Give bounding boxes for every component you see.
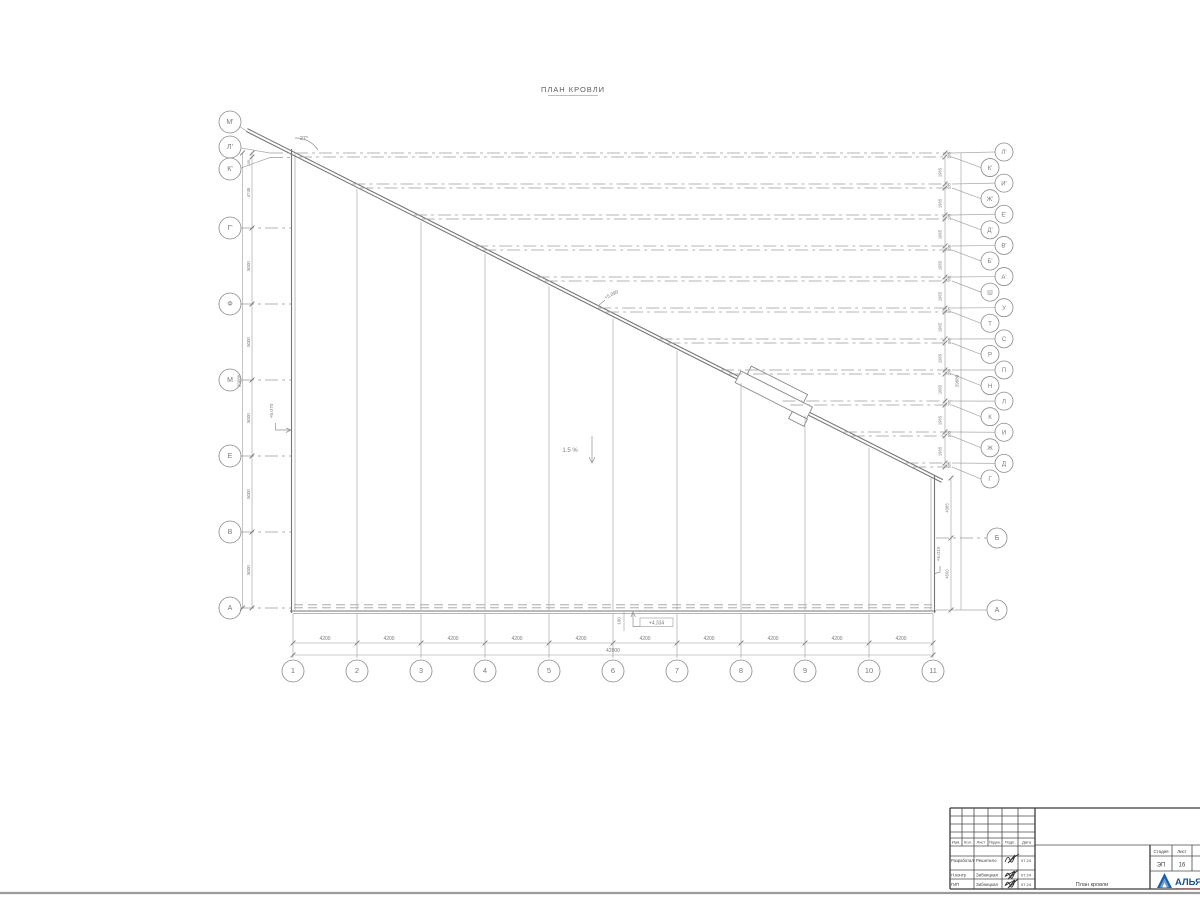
dim-right-bottom: 4500 <box>945 569 950 579</box>
dim-right-segment: 1965 <box>938 229 943 239</box>
dim-right-pair: 195 <box>948 307 952 313</box>
dim-bottom-segment: 4200 <box>639 636 650 642</box>
signature <box>1005 870 1018 879</box>
title-block: Разработал Решетило 07.24 Н.контр Зибниц… <box>950 808 1200 891</box>
elevation-right-leader <box>935 566 940 574</box>
titleblock-date-1: 07.24 <box>1021 858 1032 863</box>
building-outline <box>246 129 943 614</box>
axis-bubble-bottom-6-label: 6 <box>611 666 615 675</box>
titleblock-header-2: Лист <box>977 840 986 845</box>
elevation-bottom-label: +4.334 <box>649 621 665 627</box>
axis-bubble-right-Ж-19-label: Ж <box>987 446 993 452</box>
elevation-left-label: +5.070 <box>269 403 275 418</box>
signature <box>1005 879 1018 888</box>
angle-arc <box>295 138 318 150</box>
axis-bubble-right-Л'-0-label: Л' <box>1001 150 1006 156</box>
dim-right-segment: 1965 <box>938 446 943 456</box>
dim-bottom-segment: 4200 <box>319 636 330 642</box>
dim-right-pair: 195 <box>948 462 952 468</box>
offset-dim-label: 100 <box>617 617 622 625</box>
dim-bottom-segment: 4200 <box>831 636 842 642</box>
dim-right-segment: 1965 <box>938 291 943 301</box>
dim-bottom-segment: 4200 <box>767 636 778 642</box>
axis-bubble-right-И'-2-label: И' <box>1001 181 1006 187</box>
axis-bubble-bottom-5-label: 5 <box>547 666 551 675</box>
axis-bubble-right-Б-label: Б <box>995 535 1000 542</box>
axis-bubble-bottom-2-label: 2 <box>355 666 359 675</box>
axis-bubble-right-Ш-9-label: Ш <box>987 290 993 296</box>
titleblock-header-4: Подп. <box>1005 840 1016 845</box>
axis-bubble-left-Е-label: Е <box>228 453 233 460</box>
signature <box>1005 854 1019 863</box>
axis-bubble-right-Н-15-label: Н <box>988 384 992 390</box>
axis-bubble-right-Т-11-label: Т <box>988 321 992 327</box>
titleblock-name-2: Зибницкая <box>976 873 998 878</box>
company-logo: АЛЬЯ строительная компания <box>1157 873 1200 891</box>
dim-right-segment: 1965 <box>938 384 943 394</box>
roof-hatch <box>732 363 818 426</box>
stage-label: Стадия <box>1154 849 1170 854</box>
axis-bubble-bottom-8-label: 8 <box>739 666 743 675</box>
axis-bubble-left-Ф-label: Ф <box>227 301 232 308</box>
dim-left-total: 29680 <box>237 374 242 387</box>
dim-bottom-total: 42000 <box>606 648 620 654</box>
titleblock-role-2: Н.контр <box>951 873 967 878</box>
dim-bottom-segment: 4200 <box>383 636 394 642</box>
axis-bubble-bottom-1-label: 1 <box>291 666 295 675</box>
axis-bubble-right-У-10-label: У <box>1002 306 1006 312</box>
axis-bubble-right-Б'-7-label: Б' <box>987 259 992 265</box>
axis-bubble-left-М'-label: М' <box>226 119 233 126</box>
titleblock-date-3: 07.24 <box>1021 882 1032 887</box>
axis-bubble-right-И-18-label: И <box>1002 430 1006 436</box>
elevation-slope-label: +5.090 <box>604 289 620 301</box>
logo-subtext: строительная компания <box>1175 887 1200 891</box>
titleblock-name-1: Решетило <box>976 858 997 863</box>
axis-bubble-right-А-label: А <box>995 607 1000 614</box>
dim-left-segment: 5000 <box>246 489 251 499</box>
dim-left-segment: 5000 <box>246 337 251 347</box>
dim-right-pair: 195 <box>948 338 952 344</box>
dim-bottom-segment: 4200 <box>511 636 522 642</box>
axis-bubble-right-П-14-label: П <box>1002 368 1006 374</box>
dim-left-segment: 5000 <box>246 413 251 423</box>
dim-bottom-segment: 4200 <box>703 636 714 642</box>
axes-and-dimensions: 1420024200342004420054200642007420084200… <box>219 111 1013 682</box>
axis-bubble-right-К'-1-label: К' <box>988 166 993 172</box>
titleblock-header-1: Кол. <box>964 840 972 845</box>
axis-bubble-bottom-4-label: 4 <box>483 666 487 675</box>
axis-bubble-left-К'-label: К' <box>227 166 232 173</box>
dim-right-total: 29680 <box>955 374 960 387</box>
axis-bubble-left-М-label: М <box>227 377 233 384</box>
titleblock-name-3: Зибницкая <box>976 882 998 887</box>
dim-right-pair: 195 <box>948 183 952 189</box>
titleblock-header-3: №док. <box>989 840 1001 845</box>
axis-bubble-bottom-11-label: 11 <box>929 666 937 675</box>
axis-bubble-left-В-label: В <box>228 529 233 536</box>
axis-bubble-bottom-9-label: 9 <box>803 666 807 675</box>
dim-right-pair: 195 <box>948 276 952 282</box>
axis-bubble-right-Д'-5-label: Д' <box>987 228 992 234</box>
dim-right-segment: 1965 <box>938 353 943 363</box>
axis-bubble-right-Д-20-label: Д <box>1002 462 1006 468</box>
axis-bubble-right-Л-16-label: Л <box>1002 399 1006 405</box>
dim-right-segment: 1965 <box>938 260 943 270</box>
dim-right-pair: 195 <box>948 369 952 375</box>
dim-right-segment: 1965 <box>938 198 943 208</box>
axis-bubble-right-К-17-label: К <box>988 415 992 421</box>
axis-bubble-left-Л'-label: Л' <box>227 144 233 151</box>
stage-value: ЭП <box>1157 863 1166 869</box>
annotations: 27° 1.5 % +5.090 +5.070 +5.010 +4.334 10… <box>269 136 942 631</box>
axis-bubble-bottom-3-label: 3 <box>419 666 423 675</box>
axis-bubble-right-Е'-4-label: Е' <box>1001 212 1006 218</box>
dim-left-segment: 195 <box>247 160 251 166</box>
dim-right-pair: 195 <box>948 431 952 437</box>
axis-bubble-right-Р-13-label: Р <box>988 353 992 359</box>
titleblock-role-3: ГИП <box>951 882 959 887</box>
dim-right-segment: 1965 <box>938 415 943 425</box>
roof-plan-drawing: ПЛАН КРОВЛИ 27° 1.5 % +5.090 +5.070 <box>0 0 1200 900</box>
dim-right-segment: 1965 <box>938 167 943 177</box>
dim-bottom-segment: 4200 <box>895 636 906 642</box>
doc-title: План кровли <box>1076 882 1108 888</box>
titleblock-role-1: Разработал <box>951 858 974 863</box>
dim-left-segment: 5000 <box>246 261 251 271</box>
dim-bottom-segment: 4200 <box>575 636 586 642</box>
dim-right-segment: 1965 <box>938 322 943 332</box>
axis-bubble-right-А'-8-label: А' <box>1001 275 1006 281</box>
dim-right-pair: 195 <box>948 214 952 220</box>
dim-bottom-segment: 4200 <box>447 636 458 642</box>
axis-bubble-left-Г'-label: Г' <box>227 225 232 232</box>
axis-bubble-right-С-12-label: С <box>1002 337 1007 343</box>
slope-label: 1.5 % <box>562 448 578 454</box>
sheet-value: 16 <box>1179 863 1186 869</box>
titleblock-header-5: Дата <box>1022 840 1032 845</box>
dim-left-segment: 4745 <box>246 187 251 197</box>
drawing-sheet: ПЛАН КРОВЛИ 27° 1.5 % +5.090 +5.070 <box>0 0 1200 900</box>
titleblock-header-0: Изм. <box>952 840 961 845</box>
dim-right-pair: 195 <box>948 400 952 406</box>
dim-right-pair: 195 <box>948 152 952 158</box>
dim-left-segment: 5000 <box>246 565 251 575</box>
dim-right-bottom: 4385 <box>945 503 950 513</box>
elevation-right-label: +5.010 <box>936 546 942 561</box>
axis-bubble-right-Ж'-3-label: Ж' <box>987 197 994 203</box>
elevation-bottom-leader <box>633 613 640 627</box>
axis-bubble-left-А-label: А <box>228 605 233 612</box>
axis-bubble-right-В'-6-label: В' <box>1001 244 1006 250</box>
axis-bubble-bottom-10-label: 10 <box>865 666 873 675</box>
drawing-title: ПЛАН КРОВЛИ <box>541 85 605 94</box>
sheet-label: Лист <box>1177 849 1187 854</box>
titleblock-date-2: 07.24 <box>1021 873 1032 878</box>
axis-bubble-bottom-7-label: 7 <box>675 666 679 675</box>
elevation-slope-leader <box>598 300 605 306</box>
dim-right-pair: 195 <box>948 245 952 251</box>
